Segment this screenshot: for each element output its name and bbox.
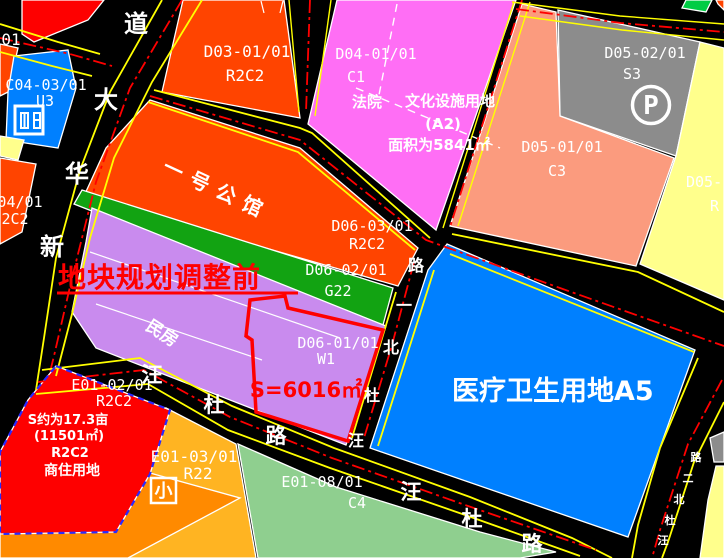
road-char: 汪 [348,431,364,450]
road-char: 杜 [204,393,225,417]
road-char: 北 [674,492,685,506]
parcel-d04-use: 文化设施用地 [405,92,495,110]
road-char: 路 [408,256,425,275]
parcel-c04-04-class: 2C2 [1,210,28,228]
parcel-d05-01-code: D05-01/01 [521,138,602,156]
road-char: 杜 [665,513,676,527]
road-char: 北 [383,338,399,357]
road-char: 路 [266,424,288,448]
planning-map-canvas: P 小 01 C04-03/01 U3 04/01 2C2 D03-01/01 … [0,0,724,558]
parcel-d05-east-code: D05- [686,173,722,191]
parcel-e01-02-area-m2: (11501㎡) [34,428,104,444]
parcel-e01-02-use: 商住用地 [44,462,100,479]
road-char: 道 [124,10,148,38]
parcel-a5-name: 医疗卫生用地A5 [452,375,654,407]
before-adjustment-annotation: 地块规划调整前 [58,261,261,294]
parcel-d05-01-class: C3 [548,162,566,180]
parcel-e01-08-code: E01-08/01 [281,473,362,491]
parcel-d05-02-code: D05-02/01 [604,44,685,62]
parcel-e01-03-class: R22 [184,464,213,483]
road-char: 一 [396,296,412,315]
parcel-d05-02-class: S3 [623,65,641,83]
parcel-d06-03-code: D06-03/01 [331,217,412,235]
w1-area-label: S=6016㎡ [250,378,362,402]
road-char: 杜 [462,507,483,531]
road-char: 汪 [401,480,422,504]
parcel-c04-03-class: U3 [36,92,54,110]
road-char: 路 [522,532,544,556]
parcel-e01-02-class2: R2C2 [51,446,89,461]
parcel-d04-code: D04-01/01 [335,45,416,63]
road-char: 华 [65,160,89,188]
parcel-d03-class: R2C2 [226,66,265,85]
parcel-e01-02-area-mu: S约为17.3亩 [28,412,108,428]
road-label-fragment: 01 [1,30,20,49]
parcel-e01-02-class: R2C2 [96,392,132,410]
parcel-d04-use-code: (A2) [425,115,461,133]
road-char: 新 [40,233,64,261]
parcel-d04-area: 面积为5841㎡ [388,136,490,154]
road-char: 大 [94,86,118,114]
road-char: 汪 [658,533,669,547]
parcel-d06-01-code: D06-01/01 [297,334,378,352]
road-char: 杜 [364,386,380,405]
parcel-d03-code: D03-01/01 [204,42,291,61]
road-char: 汪 [142,363,163,387]
parcel-d06-02-code: D06-02/01 [305,261,386,279]
parcel-d06-01-class: W1 [317,350,335,368]
parcel-e01-08-class: C4 [348,494,366,512]
road-char: 二 [683,472,694,485]
parcel-c04-04-code: 04/01 [0,193,43,211]
parcel-d04-class: C1 [347,68,365,86]
planning-map: P 小 01 C04-03/01 U3 04/01 2C2 D03-01/01 … [0,0,724,558]
elementary-school-icon-char: 小 [155,481,173,502]
parking-icon-letter: P [643,91,659,121]
parcel-d06-02-class: G22 [324,282,351,300]
parcel-d04-occupant: 法院 [352,93,382,111]
parcel-d06-03-class: R2C2 [349,235,385,253]
parcel-d05-east-class: R [710,197,720,215]
road-char: 路 [691,450,703,464]
elementary-school-icon: 小 [151,478,176,503]
